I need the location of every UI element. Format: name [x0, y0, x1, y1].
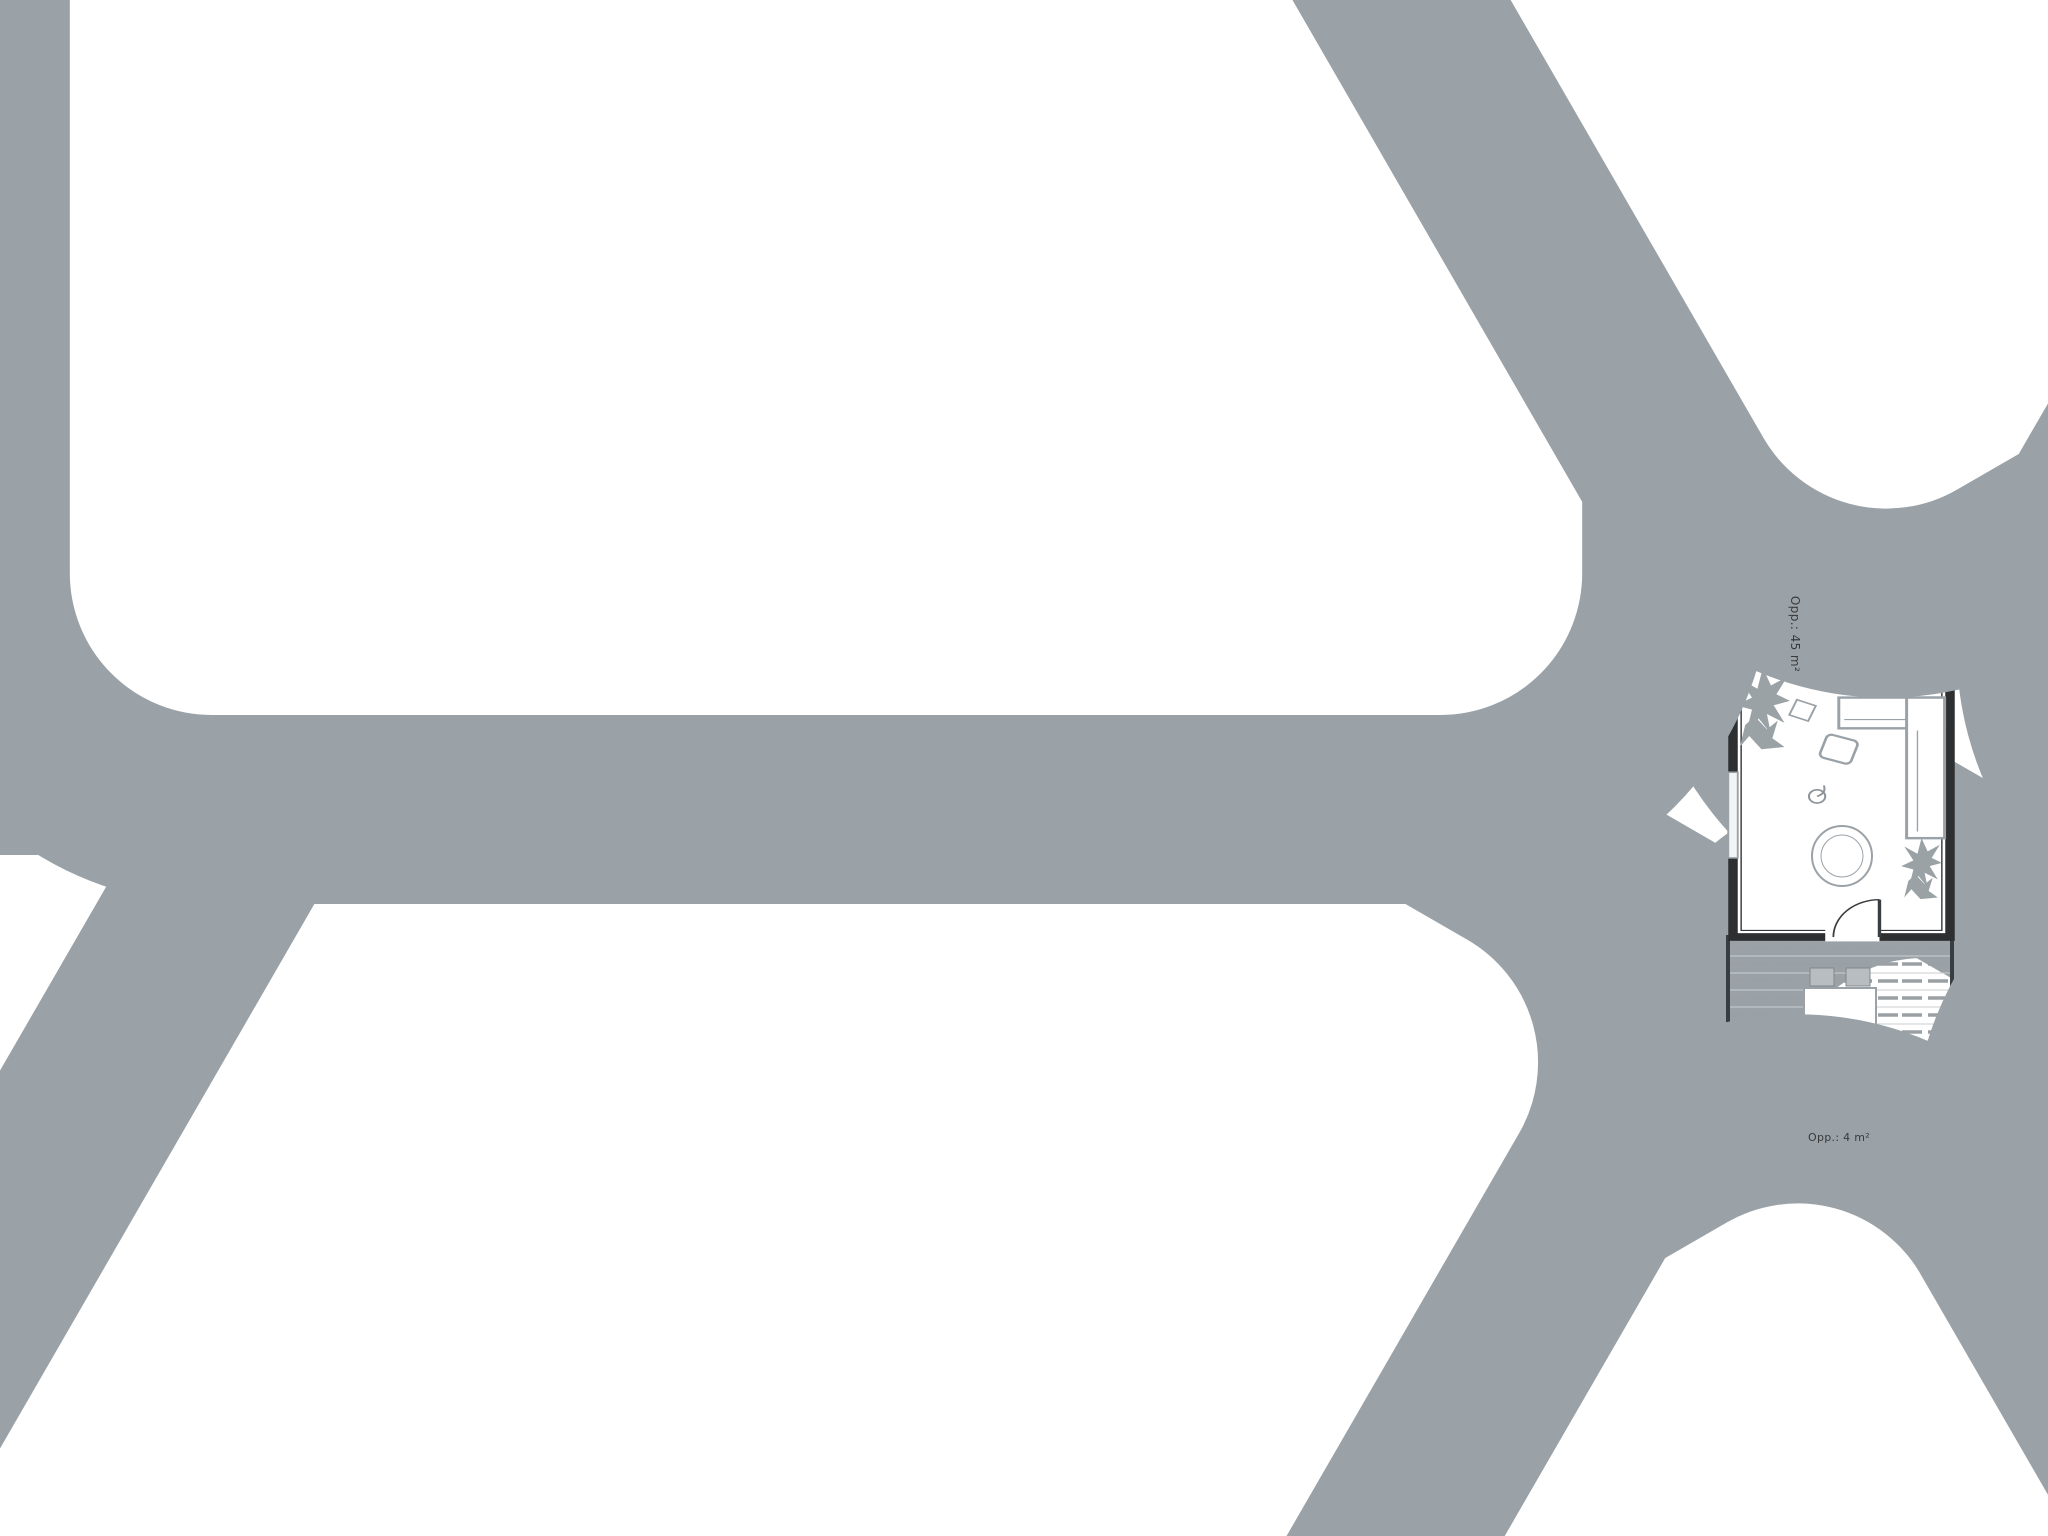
area-label: Opp.: 45 m² [1788, 596, 1802, 672]
area-label: Opp.: 4 m² [1808, 1131, 1870, 1144]
plan-5: Opp.: 45 m² Opp.: 4 m² [0, 0, 2048, 1536]
drawing-sheet: Opp.: 54 m² Opp.: 24 m² Opp.: 16 m² [0, 0, 2048, 1536]
floor-plans-canvas: Opp.: 54 m² Opp.: 24 m² Opp.: 16 m² [0, 0, 2048, 1536]
